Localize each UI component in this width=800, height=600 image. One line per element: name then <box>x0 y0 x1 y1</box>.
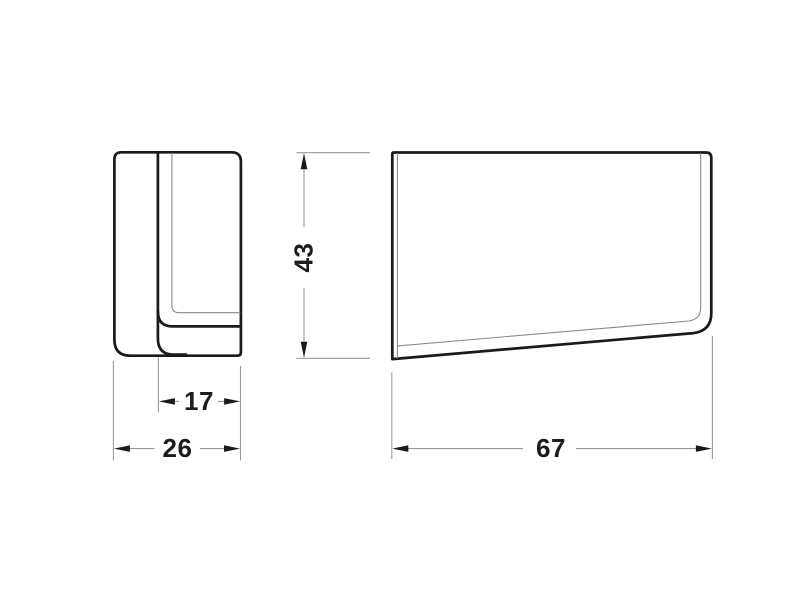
dimension-drawing: 43 17 26 <box>0 0 800 600</box>
arrowhead-right <box>224 445 240 452</box>
side-inner-edge-upper <box>158 152 241 326</box>
arrowhead-up <box>301 153 308 169</box>
front-view <box>392 153 711 360</box>
arrowhead-right <box>696 445 712 452</box>
technical-drawing-canvas: 43 17 26 <box>0 0 800 600</box>
side-profile-view <box>114 152 240 355</box>
arrowhead-left <box>159 398 175 405</box>
front-outline <box>392 153 711 360</box>
arrowhead-left <box>114 445 130 452</box>
front-inner-thin-edge <box>398 153 701 346</box>
dimension-inner-depth: 17 <box>158 358 240 416</box>
side-inner-edge-lower <box>158 312 186 355</box>
dimension-label-depth: 26 <box>163 433 193 463</box>
dimension-label-length: 67 <box>536 433 566 463</box>
dimension-label-height: 43 <box>289 243 319 273</box>
dimensions: 43 17 26 <box>113 153 712 463</box>
dimension-label-inner-depth: 17 <box>184 386 214 416</box>
dimension-depth: 26 <box>113 361 240 463</box>
side-inner-thin-edge <box>172 153 240 313</box>
arrowhead-right <box>224 398 240 405</box>
dimension-height: 43 <box>289 153 371 359</box>
arrowhead-left <box>392 445 408 452</box>
arrowhead-down <box>301 342 308 358</box>
